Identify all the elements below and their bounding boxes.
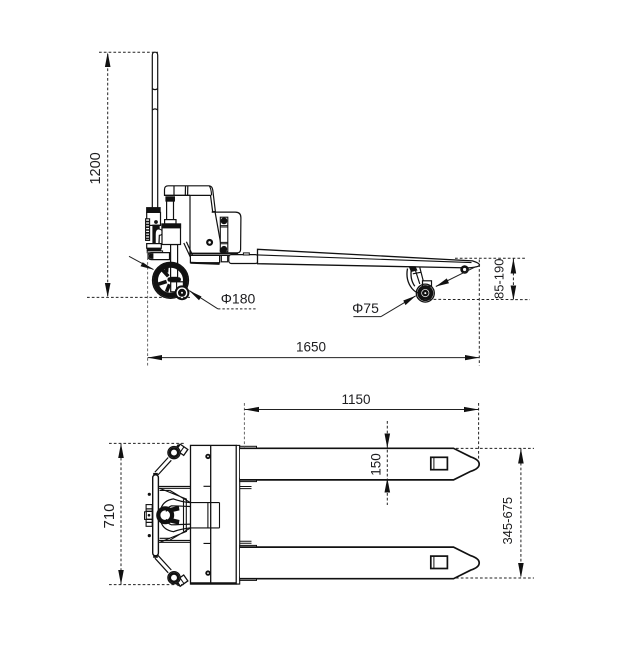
svg-text:150: 150 (369, 453, 384, 476)
svg-text:345-675: 345-675 (500, 497, 515, 545)
svg-text:85-190: 85-190 (492, 259, 507, 299)
svg-text:1200: 1200 (88, 152, 104, 184)
svg-text:710: 710 (101, 503, 118, 528)
svg-text:1650: 1650 (296, 340, 326, 355)
svg-text:Φ75: Φ75 (352, 300, 379, 316)
svg-text:Φ180: Φ180 (221, 291, 256, 307)
svg-text:1150: 1150 (341, 392, 370, 407)
